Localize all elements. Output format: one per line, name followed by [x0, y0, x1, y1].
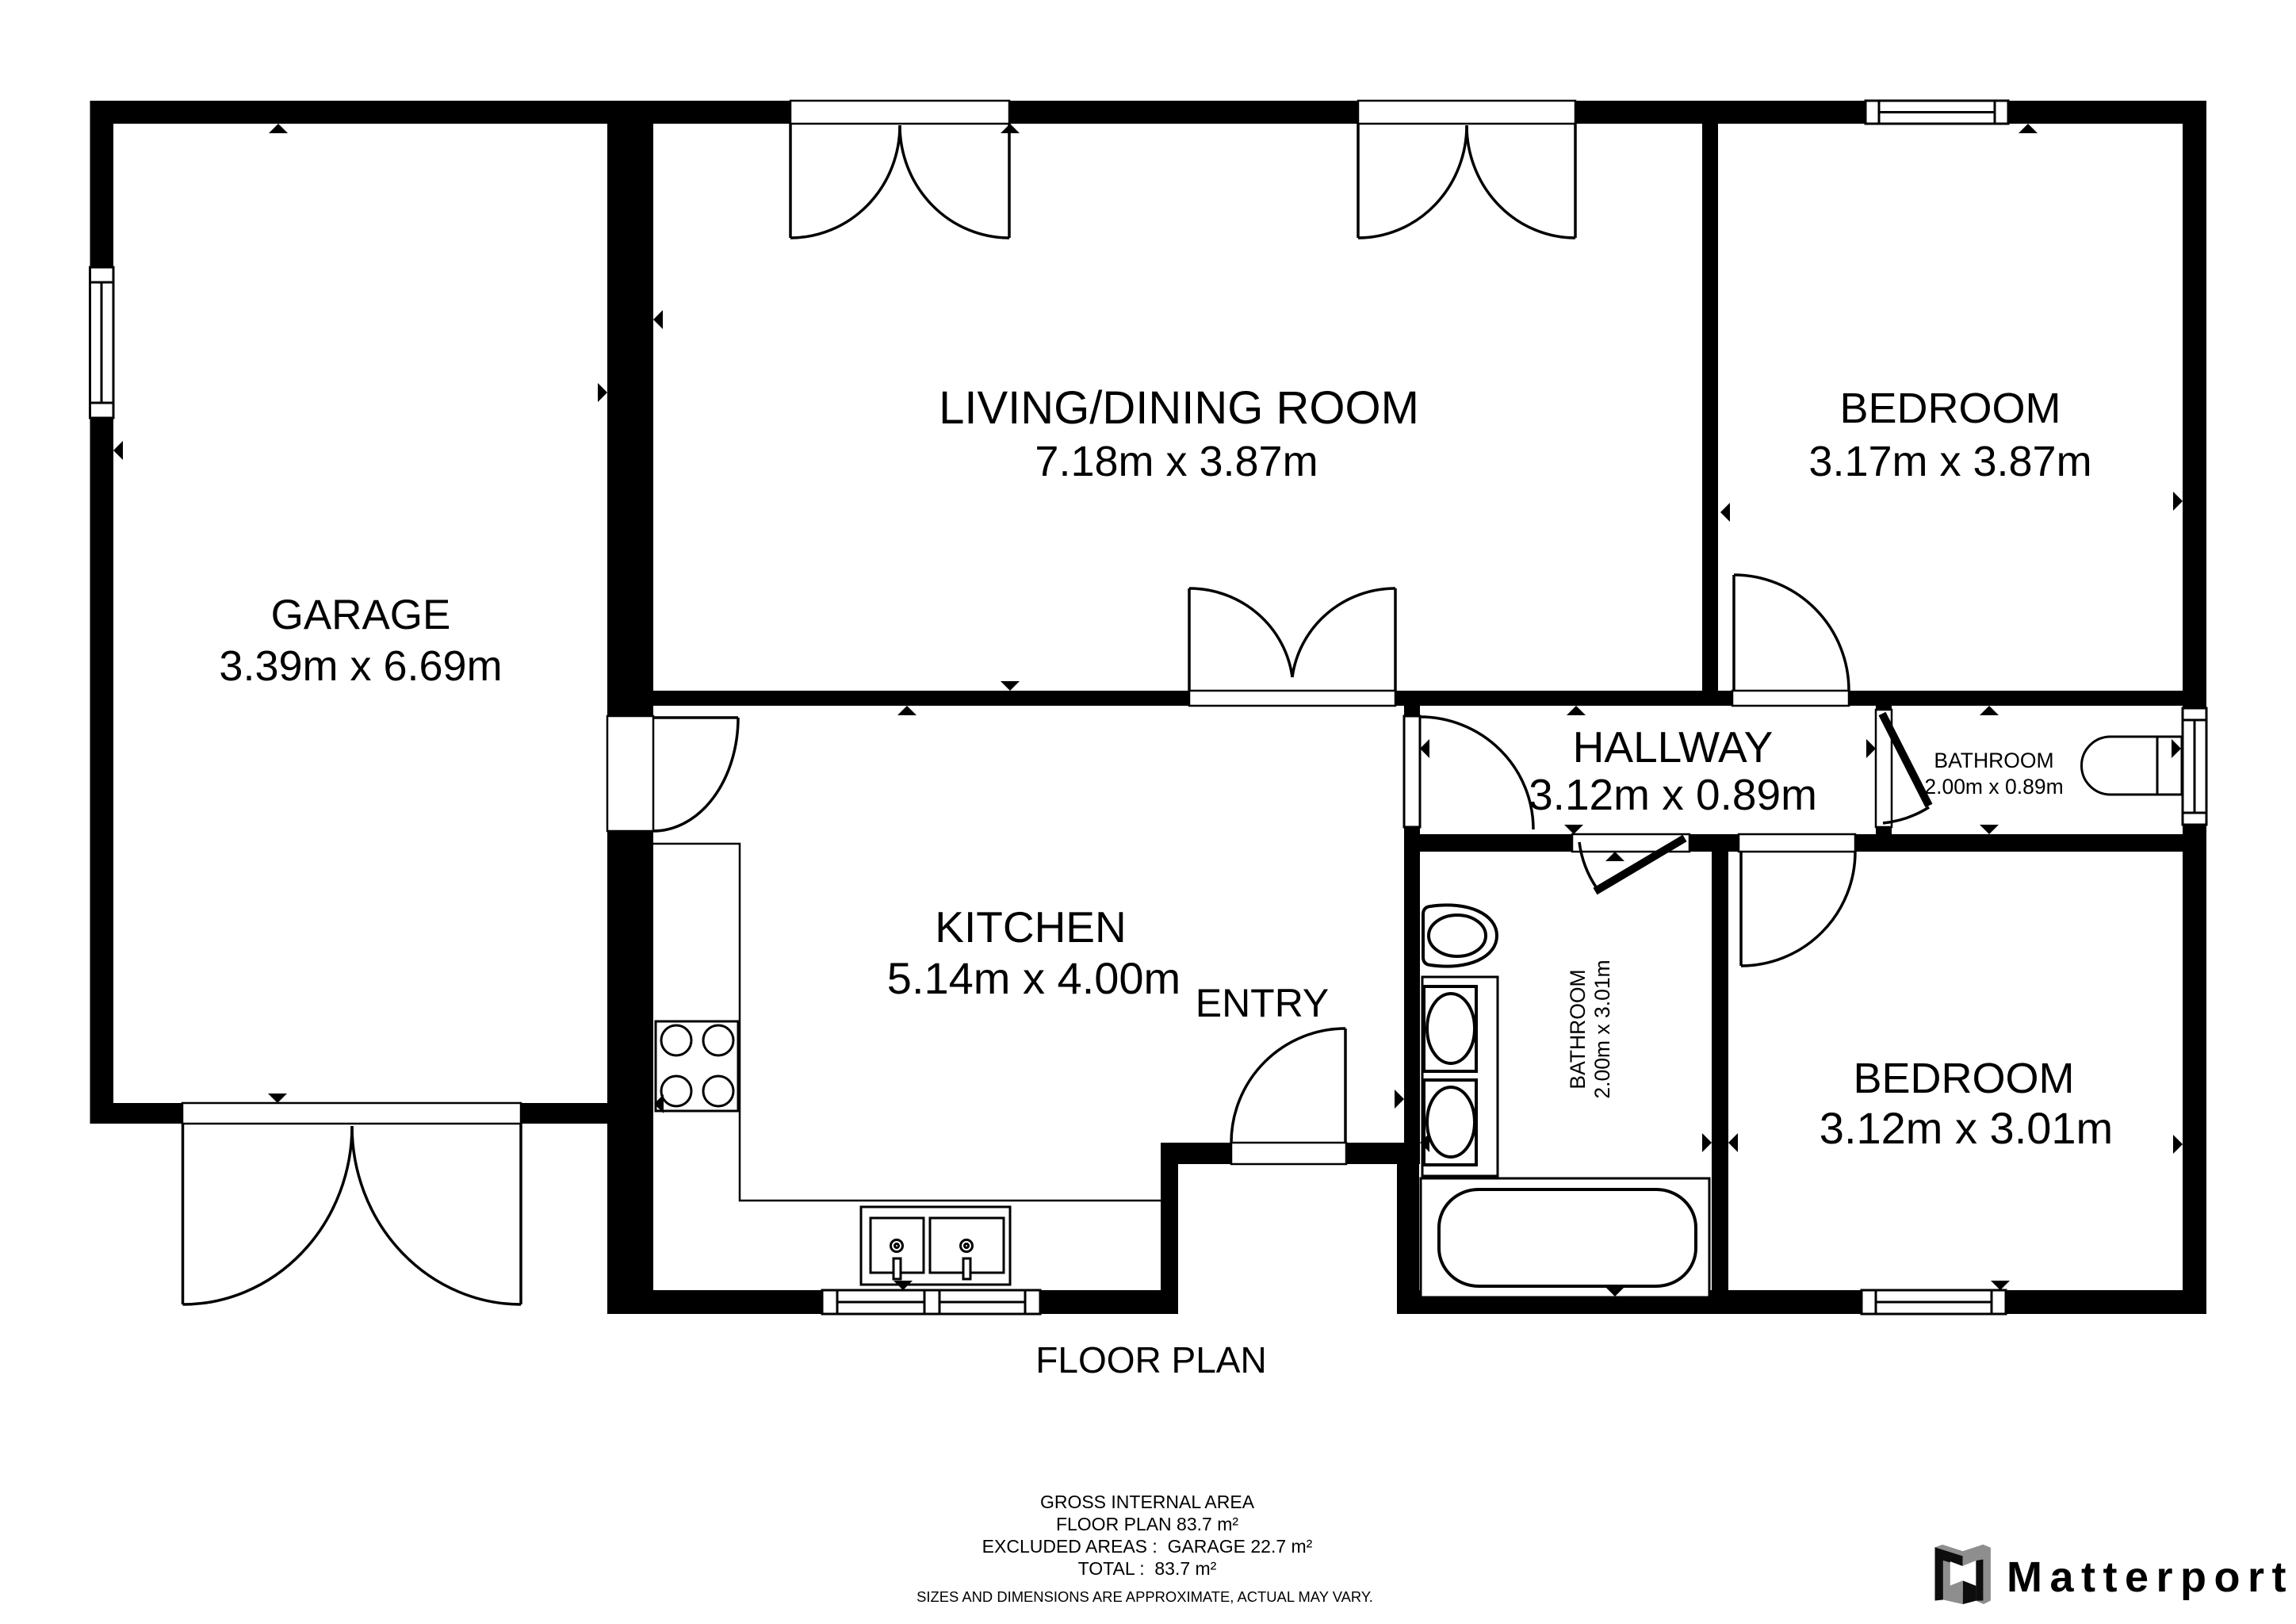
svg-text:FLOOR PLAN 83.7 m²: FLOOR PLAN 83.7 m² [1056, 1514, 1238, 1534]
svg-text:SIZES AND DIMENSIONS ARE APPRO: SIZES AND DIMENSIONS ARE APPROXIMATE, AC… [916, 1588, 1373, 1605]
svg-text:LIVING/DINING ROOM: LIVING/DINING ROOM [939, 382, 1419, 434]
svg-text:Matterport: Matterport [2007, 1553, 2294, 1601]
svg-text:EXCLUDED AREAS : GARAGE 22.7: EXCLUDED AREAS : GARAGE 22.7 m² [982, 1536, 1313, 1557]
svg-text:2.00m x 0.89m: 2.00m x 0.89m [1924, 775, 2063, 799]
svg-text:BEDROOM: BEDROOM [1839, 385, 2061, 432]
svg-text:3.39m x 6.69m: 3.39m x 6.69m [219, 642, 502, 690]
svg-text:BATHROOM: BATHROOM [1934, 749, 2053, 772]
svg-text:3.17m x 3.87m: 3.17m x 3.87m [1808, 438, 2091, 485]
svg-text:BATHROOM: BATHROOM [1566, 969, 1590, 1089]
svg-text:FLOOR PLAN: FLOOR PLAN [1035, 1339, 1266, 1381]
svg-text:HALLWAY: HALLWAY [1573, 722, 1774, 772]
svg-text:KITCHEN: KITCHEN [935, 902, 1126, 952]
svg-text:GROSS INTERNAL AREA: GROSS INTERNAL AREA [1040, 1492, 1255, 1512]
svg-text:3.12m x 3.01m: 3.12m x 3.01m [1820, 1103, 2113, 1153]
svg-text:ENTRY: ENTRY [1196, 981, 1330, 1025]
svg-text:5.14m x 4.00m: 5.14m x 4.00m [887, 953, 1181, 1003]
svg-text:3.12m x 0.89m: 3.12m x 0.89m [1529, 770, 1817, 819]
svg-text:7.18m x 3.87m: 7.18m x 3.87m [1035, 438, 1318, 485]
svg-text:2.00m x 3.01m: 2.00m x 3.01m [1590, 959, 1614, 1098]
svg-text:BEDROOM: BEDROOM [1853, 1055, 2074, 1102]
svg-text:GARAGE: GARAGE [271, 592, 451, 638]
svg-text:TOTAL : 83.7 m²: TOTAL : 83.7 m² [1078, 1558, 1217, 1579]
